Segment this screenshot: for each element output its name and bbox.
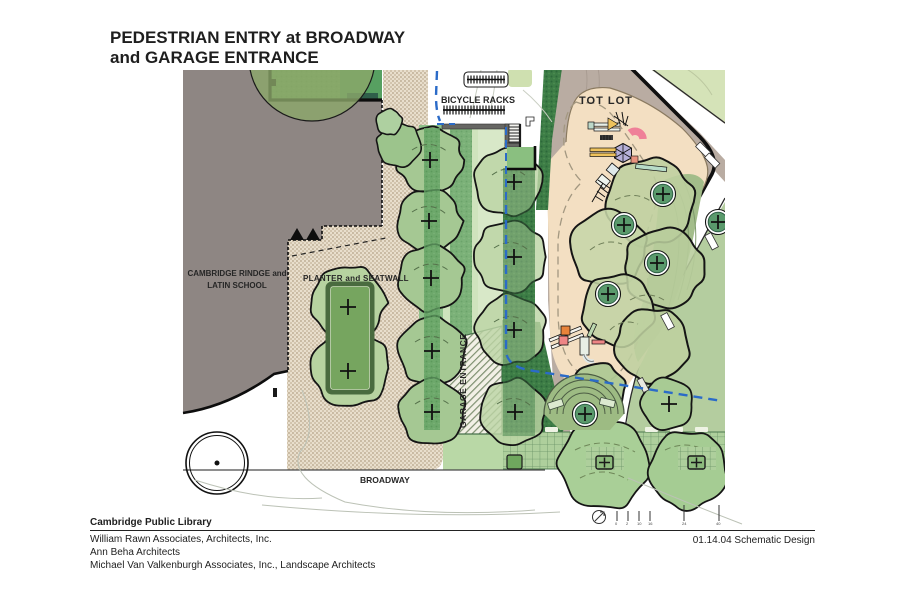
svg-text:LATIN SCHOOL: LATIN SCHOOL bbox=[207, 281, 267, 290]
svg-text:BROADWAY: BROADWAY bbox=[360, 475, 410, 485]
svg-text:2: 2 bbox=[626, 521, 629, 526]
svg-text:10: 10 bbox=[637, 521, 642, 526]
svg-text:PLANTER and SEATWALL: PLANTER and SEATWALL bbox=[303, 274, 409, 283]
svg-text:24: 24 bbox=[682, 521, 687, 526]
svg-text:40: 40 bbox=[716, 521, 721, 526]
svg-text:TOT LOT: TOT LOT bbox=[579, 95, 633, 107]
svg-text:CAMBRIDGE RINDGE and: CAMBRIDGE RINDGE and bbox=[187, 269, 286, 278]
svg-text:BICYCLE RACKS: BICYCLE RACKS bbox=[441, 95, 515, 105]
svg-text:GARAGE ENTRANCE: GARAGE ENTRANCE bbox=[458, 334, 468, 428]
svg-text:0: 0 bbox=[615, 521, 618, 526]
svg-text:16: 16 bbox=[648, 521, 653, 526]
